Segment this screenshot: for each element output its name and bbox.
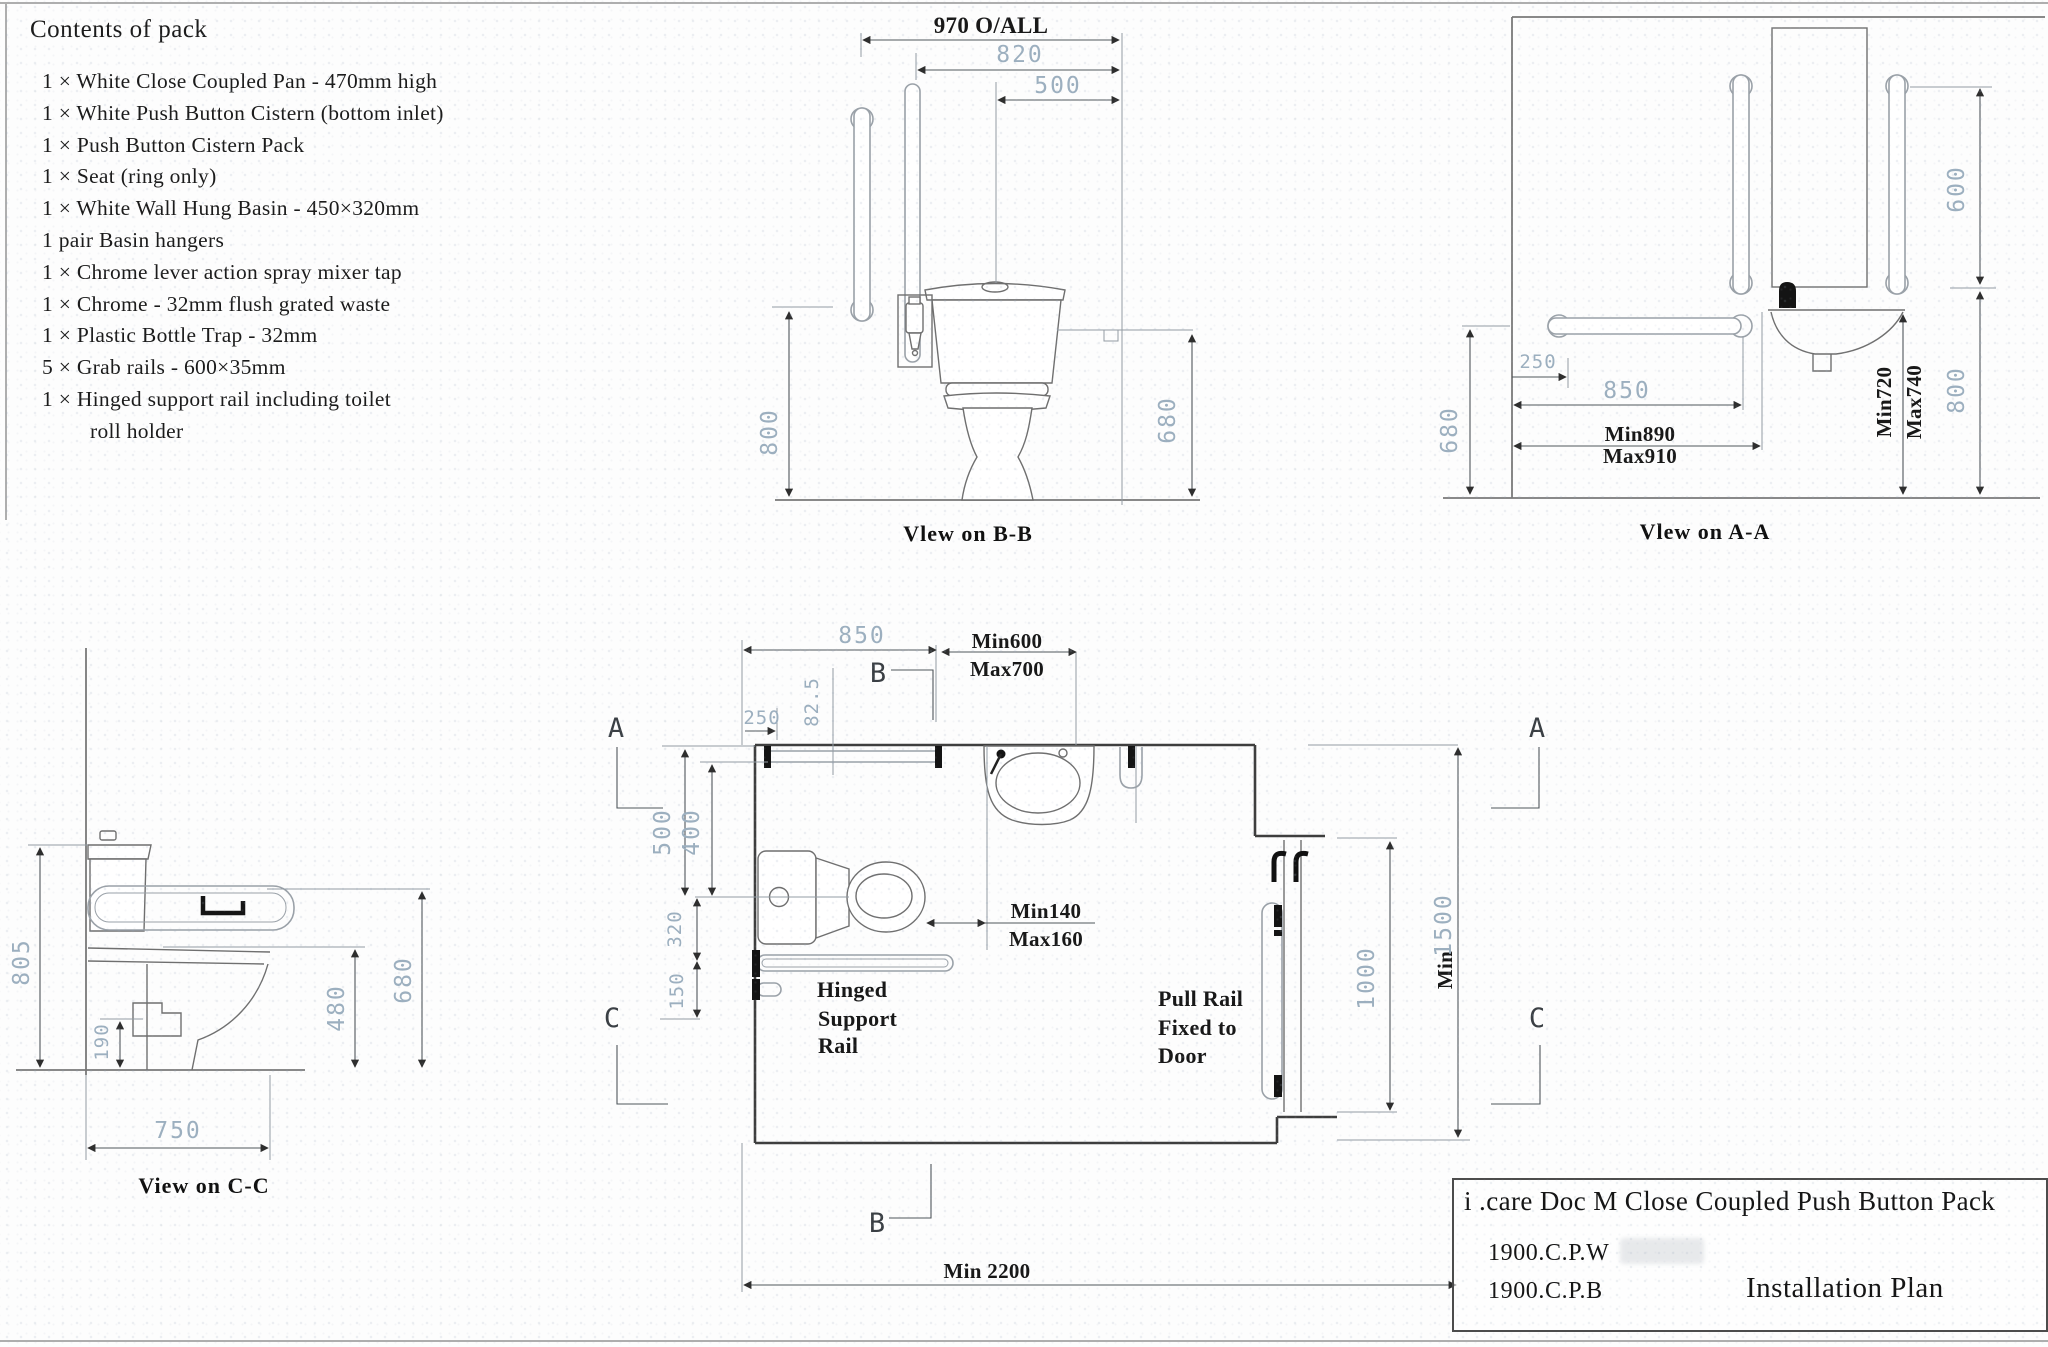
view-bb: 970 O/ALL 820 500 800 680 Vlew on B-B	[757, 13, 1200, 546]
plan-dim-150: 150	[666, 972, 688, 1009]
section-marker-c-left: C	[604, 1003, 620, 1034]
aa-mirror	[1772, 28, 1867, 287]
door-hinge	[1296, 853, 1308, 882]
contents-item: 1 × Plastic Bottle Trap - 32mm	[42, 320, 444, 352]
plan-reference-lines	[660, 640, 1470, 1292]
title-block-code-2: 1900.C.P.B	[1488, 1278, 1603, 1305]
contents-item: 1 × Seat (ring only)	[42, 161, 444, 193]
plan-dim-min140: Min140	[1011, 899, 1082, 923]
section-marker-b-top-bracket	[891, 670, 933, 720]
plan-dim-82-5: 82.5	[801, 677, 823, 727]
aa-vertical-grab-rail-left	[1730, 75, 1752, 294]
plan-dim-250: 250	[743, 707, 780, 729]
plan-dim-320: 320	[664, 910, 686, 947]
contents-item: 1 × Push Button Cistern Pack	[42, 130, 444, 162]
plan-dim-1000: 1000	[1354, 946, 1380, 1009]
view-bb-fixtures	[772, 33, 1200, 505]
contents-item: 5 × Grab rails - 600×35mm	[42, 352, 444, 384]
cc-dim-805: 805	[9, 938, 35, 986]
contents-item-continuation: roll holder	[42, 416, 444, 448]
cc-dim-680: 680	[391, 956, 417, 1004]
plan-dim-max700: Max700	[970, 657, 1044, 681]
plan-dim-500: 500	[650, 808, 676, 856]
contents-item: 1 × White Wall Hung Basin - 450×320mm	[42, 193, 444, 225]
aa-dim-680: 680	[1437, 406, 1463, 454]
plan-view: 850 250 82.5 Min600 Max700 500 400 320 1…	[604, 623, 1545, 1292]
view-bb-caption: Vlew on B-B	[903, 521, 1033, 546]
view-aa-caption: Vlew on A-A	[1640, 519, 1771, 544]
plan-dim-400: 400	[679, 808, 705, 856]
aa-vertical-grab-rail-right	[1886, 75, 1908, 294]
aa-dim-850: 850	[1603, 378, 1651, 404]
cc-dim-750: 750	[154, 1118, 202, 1144]
section-marker-a-left: A	[608, 713, 624, 744]
aa-dim-min720: Min720	[1872, 367, 1896, 438]
plan-basin	[984, 746, 1136, 825]
bb-dim-800: 800	[757, 408, 783, 456]
pull-rail	[1262, 903, 1282, 1099]
pull-rail-label-line3: Door	[1158, 1043, 1207, 1068]
section-marker-a-right: A	[1529, 713, 1545, 744]
section-marker-b-top: B	[870, 658, 886, 689]
plan-annotations: Hinged Support Rail Pull Rail Fixed to D…	[817, 977, 1243, 1068]
bb-dim-500: 500	[1034, 73, 1082, 99]
bb-dim-680: 680	[1155, 396, 1181, 444]
title-block-code-1: 1900.C.P.W	[1488, 1240, 1609, 1267]
cc-reference-lines	[28, 845, 430, 1160]
aa-dim-max910: Max910	[1603, 444, 1677, 468]
aa-dim-600: 600	[1944, 165, 1970, 213]
aa-horizontal-grab-rail	[1548, 315, 1752, 337]
cc-toilet-roll-holder	[203, 896, 243, 913]
bb-dim-overall: 970 O/ALL	[934, 13, 1049, 38]
view-aa: 600 800 250 680 850 Min890 Max910 Min720…	[1437, 17, 2045, 544]
aa-tap	[1779, 282, 1796, 308]
pull-rail-label-line1: Pull Rail	[1158, 986, 1243, 1011]
contents-item: 1 × White Push Button Cistern (bottom in…	[42, 98, 444, 130]
pull-rail-label-line2: Fixed to	[1158, 1015, 1237, 1040]
plan-dim-1500: 1500	[1431, 893, 1457, 956]
contents-of-pack: Contents of pack 1 × White Close Coupled…	[30, 16, 444, 448]
cc-pan	[88, 948, 270, 1070]
section-marker-c-left-bracket	[617, 1045, 668, 1104]
title-block-doc-title: Installation Plan	[1746, 1272, 1944, 1305]
plan-vertical-rail-flange	[1120, 746, 1142, 788]
aa-dim-max740: Max740	[1902, 365, 1926, 439]
section-marker-a-left-bracket	[617, 747, 663, 808]
section-marker-c-right: C	[1529, 1003, 1545, 1034]
section-marker-a-right-bracket	[1491, 747, 1539, 808]
installation-plan-page: Contents of pack 1 × White Close Coupled…	[0, 0, 2048, 1347]
plan-dim-min600: Min600	[972, 629, 1043, 653]
plan-dim-min2200: Min 2200	[944, 1259, 1031, 1283]
section-marker-b-bottom-bracket	[889, 1164, 931, 1218]
plan-dim-850: 850	[838, 623, 886, 649]
contents-heading: Contents of pack	[30, 16, 444, 44]
aa-dim-250: 250	[1519, 351, 1556, 373]
bb-dim-820: 820	[996, 42, 1044, 68]
view-cc-caption: View on C-C	[138, 1173, 269, 1198]
contents-item: 1 × Hinged support rail including toilet	[42, 384, 444, 416]
aa-basin	[1768, 310, 1905, 371]
hinged-rail-label-line1: Hinged	[817, 977, 887, 1002]
faded-mark	[1620, 1238, 1704, 1264]
plan-door	[1262, 840, 1308, 1112]
bb-toilet	[925, 282, 1065, 500]
contents-list: 1 × White Close Coupled Pan - 470mm high…	[30, 66, 444, 448]
hinged-rail-label-line3: Rail	[818, 1033, 858, 1058]
section-marker-c-right-bracket	[1491, 1045, 1540, 1104]
section-marker-b-bottom: B	[869, 1208, 885, 1239]
contents-item: 1 pair Basin hangers	[42, 225, 444, 257]
cc-dim-480: 480	[324, 984, 350, 1032]
plan-wall-grab-rail	[764, 746, 942, 768]
contents-item: 1 × Chrome lever action spray mixer tap	[42, 257, 444, 289]
view-cc: 805 190 480 680 750 View on C-C	[9, 648, 430, 1198]
title-block: i .care Doc M Close Coupled Push Button …	[1452, 1178, 2048, 1332]
aa-dim-800: 800	[1944, 366, 1970, 414]
plan-dim-max160: Max160	[1009, 927, 1083, 951]
cc-dim-190: 190	[91, 1023, 113, 1060]
plan-dimensions: 850 250 82.5 Min600 Max700 500 400 320 1…	[650, 623, 1458, 1285]
contents-item: 1 × White Close Coupled Pan - 470mm high	[42, 66, 444, 98]
bb-wall-grab-rail	[851, 108, 873, 321]
aa-dim-min890: Min890	[1605, 422, 1676, 446]
view-aa-fixtures	[1443, 17, 2045, 498]
hinged-rail-label-line2: Support	[818, 1006, 898, 1031]
view-cc-fixtures	[16, 648, 430, 1160]
title-block-product: i .care Doc M Close Coupled Push Button …	[1464, 1186, 1995, 1217]
contents-item: 1 × Chrome - 32mm flush grated waste	[42, 289, 444, 321]
